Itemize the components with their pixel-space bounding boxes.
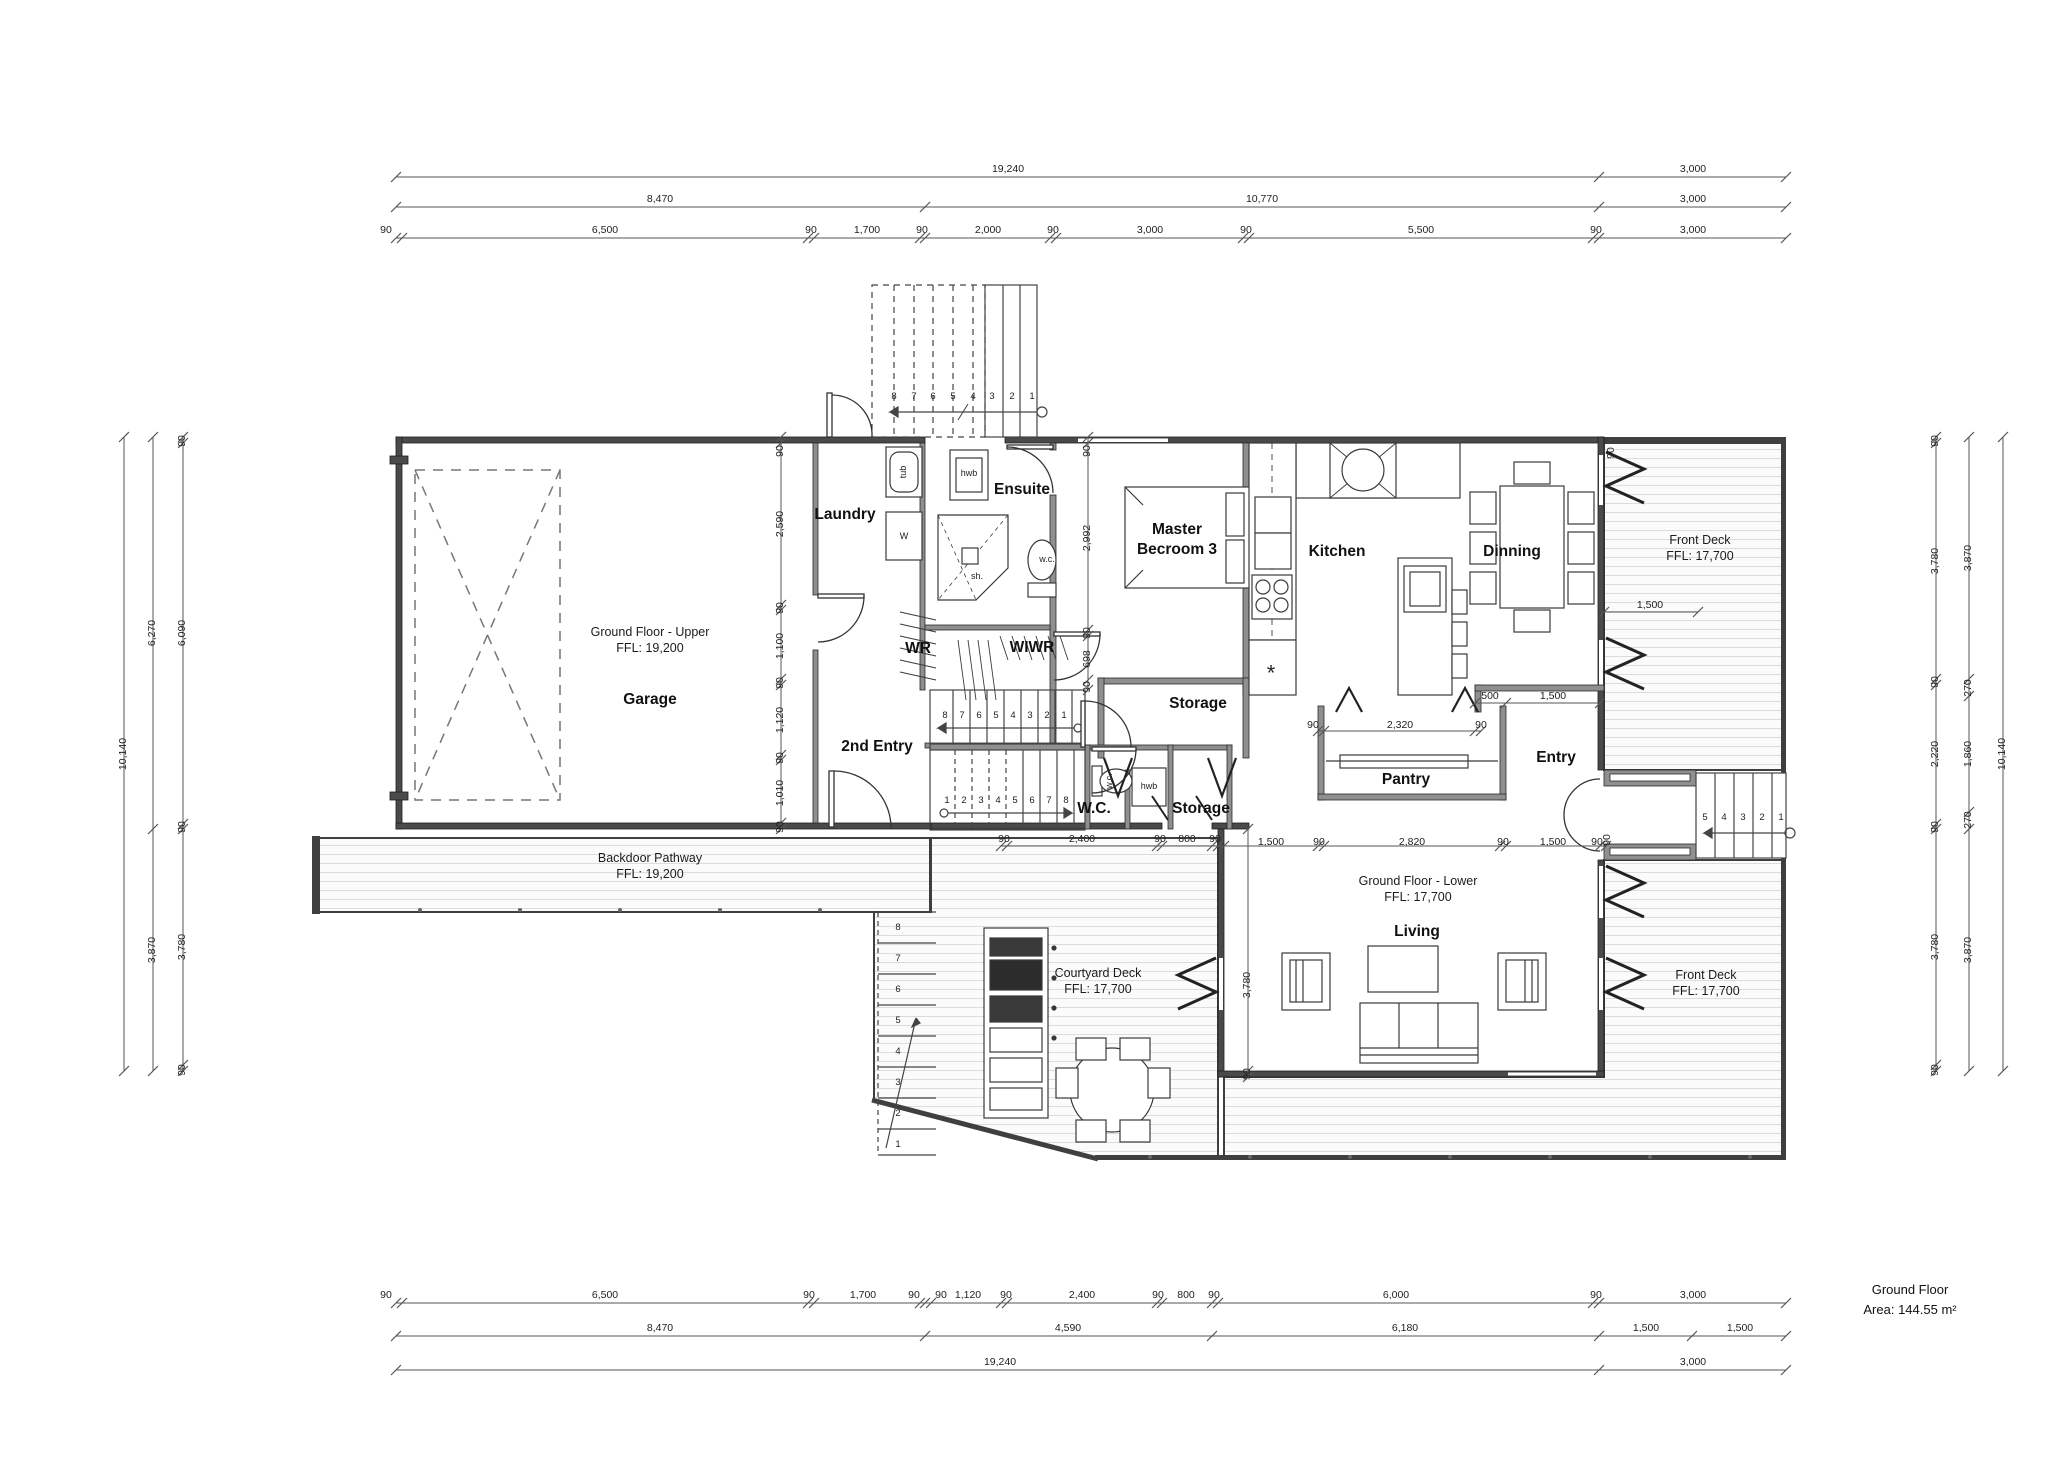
front-deck-upper (1604, 443, 1783, 770)
floor-plan-canvas: GarageLaundryEnsuiteWRWIWR2nd EntryW.C.S… (0, 0, 2056, 1480)
title-block-floor: Ground Floor (1830, 1280, 1990, 1300)
furniture (886, 443, 1594, 1142)
garage-car-space (415, 470, 560, 800)
backdoor-pathway (318, 838, 930, 912)
door-swings (818, 393, 1600, 851)
title-block-area: Area: 144.55 m² (1830, 1300, 1990, 1320)
floor-plan-drawing (0, 0, 2056, 1480)
title-block: Ground Floor Area: 144.55 m² (1830, 1280, 1990, 1320)
